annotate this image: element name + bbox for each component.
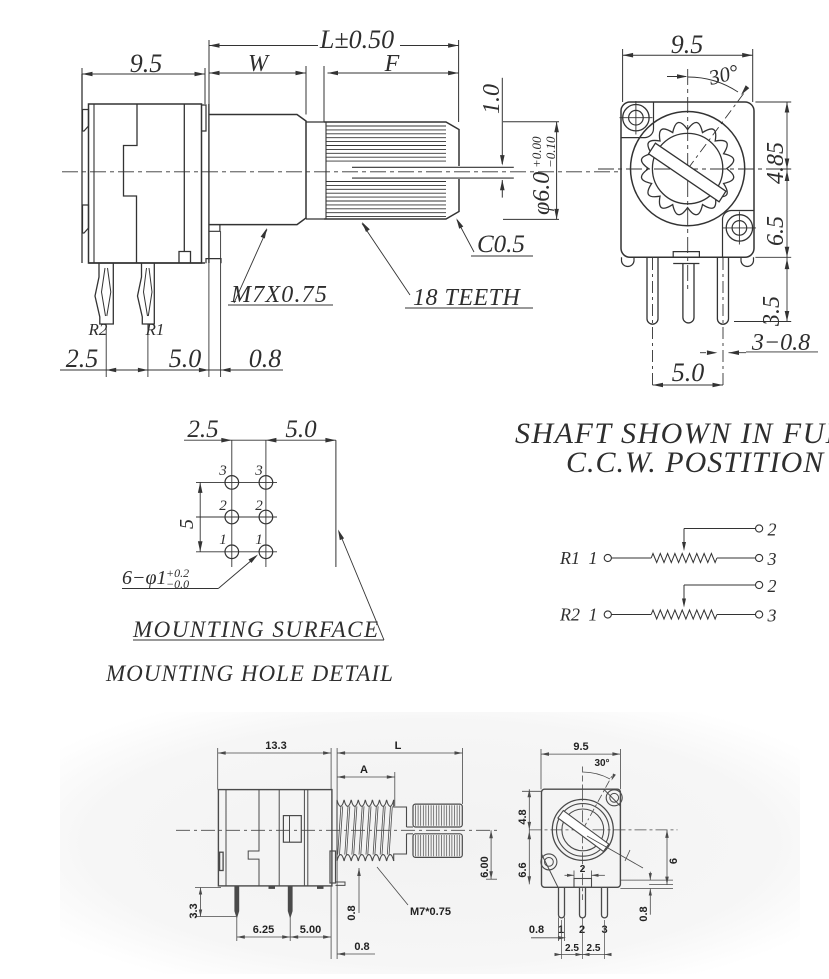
svg-text:0.8: 0.8 [249, 344, 282, 373]
svg-text:6.5: 6.5 [763, 216, 789, 246]
svg-text:MOUNTING HOLE DETAIL: MOUNTING HOLE DETAIL [105, 661, 394, 686]
svg-text:−0.10: −0.10 [543, 136, 558, 168]
svg-text:2.5: 2.5 [565, 943, 579, 954]
svg-text:MOUNTING SURFACE: MOUNTING SURFACE [132, 617, 380, 642]
svg-text:0.8: 0.8 [529, 924, 544, 936]
svg-text:5.00: 5.00 [300, 924, 321, 936]
svg-text:13.3: 13.3 [265, 740, 286, 752]
svg-text:2: 2 [255, 498, 263, 514]
svg-text:5: 5 [176, 519, 198, 529]
svg-text:1: 1 [255, 532, 263, 548]
svg-text:30°: 30° [594, 758, 609, 769]
svg-text:9.5: 9.5 [573, 741, 588, 753]
svg-text:9.5: 9.5 [671, 30, 704, 59]
svg-text:0.8: 0.8 [354, 941, 369, 953]
svg-text:2: 2 [580, 864, 586, 875]
svg-text:6: 6 [668, 858, 680, 864]
svg-text:C.C.W. POSTITION: C.C.W. POSTITION [566, 446, 825, 479]
svg-text:4.8: 4.8 [517, 809, 529, 824]
svg-text:3: 3 [767, 606, 777, 626]
svg-text:F: F [384, 51, 400, 77]
svg-text:3: 3 [218, 463, 227, 479]
svg-text:R1: R1 [559, 548, 580, 568]
svg-text:2.5: 2.5 [187, 416, 218, 443]
svg-text:18 TEETH: 18 TEETH [413, 285, 522, 311]
svg-text:W: W [248, 51, 270, 77]
svg-text:1.0: 1.0 [479, 84, 505, 114]
svg-text:L: L [395, 740, 402, 752]
svg-text:9.5: 9.5 [130, 49, 163, 78]
svg-text:2.5: 2.5 [587, 943, 601, 954]
svg-text:6−φ1: 6−φ1 [122, 567, 167, 589]
svg-text:2: 2 [768, 576, 777, 596]
svg-text:φ6.0: φ6.0 [529, 172, 555, 215]
svg-text:5.0: 5.0 [169, 344, 202, 373]
svg-text:1: 1 [589, 548, 598, 568]
svg-text:5.0: 5.0 [285, 416, 317, 443]
svg-text:R2: R2 [559, 605, 580, 625]
svg-text:A: A [360, 764, 368, 776]
svg-text:6.00: 6.00 [479, 856, 491, 877]
svg-text:1: 1 [589, 605, 598, 625]
svg-text:6.6: 6.6 [517, 862, 529, 877]
svg-text:0.8: 0.8 [346, 905, 358, 920]
svg-text:3.3: 3.3 [188, 903, 200, 918]
svg-text:M7*0.75: M7*0.75 [410, 906, 451, 918]
svg-text:R2: R2 [88, 320, 108, 339]
svg-text:3.5: 3.5 [759, 296, 785, 327]
svg-text:2: 2 [579, 924, 585, 936]
svg-text:+0.00: +0.00 [529, 136, 544, 168]
svg-text:2.5: 2.5 [66, 344, 99, 373]
svg-text:0.8: 0.8 [638, 906, 650, 921]
svg-text:M7X0.75: M7X0.75 [230, 282, 328, 308]
svg-text:5.0: 5.0 [672, 358, 705, 387]
svg-text:3: 3 [767, 549, 777, 569]
svg-text:C0.5: C0.5 [477, 231, 525, 258]
svg-text:2: 2 [768, 520, 777, 540]
svg-text:2: 2 [219, 498, 227, 514]
svg-text:L±0.50: L±0.50 [319, 25, 394, 54]
svg-text:4.85: 4.85 [763, 142, 789, 184]
svg-text:3: 3 [254, 463, 263, 479]
svg-text:1: 1 [219, 532, 227, 548]
svg-text:6.25: 6.25 [253, 924, 274, 936]
